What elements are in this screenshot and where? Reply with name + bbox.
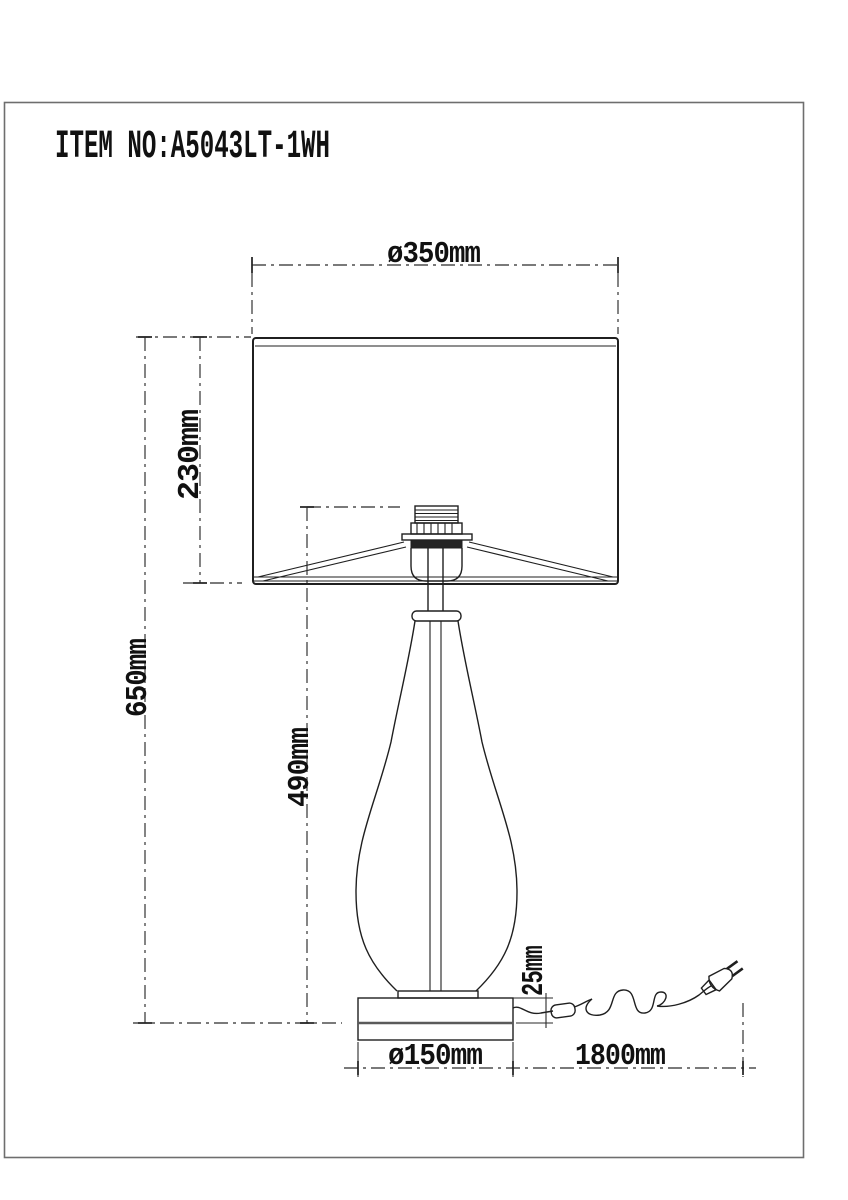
dimension-total-height: 650mm [121,337,342,1023]
total-height-label: 650mm [121,639,156,717]
dimensions: ø350mm 230mm 650mm 490mm [121,237,756,1077]
socket-lower-thread [411,540,462,548]
socket-knurled-ring [411,523,462,534]
item-number-label: ITEM NO:A5043LT-1WH [55,125,330,170]
base-step-label: 25mm [517,946,552,996]
lamp-base [358,998,513,1040]
dimension-base-diameter: ø150mm [344,1039,756,1077]
technical-drawing-page: ITEM NO:A5043LT-1WH [0,0,848,1200]
base-outline [358,998,513,1040]
power-plug [698,958,745,999]
dimension-shade-diameter: ø350mm [252,237,618,334]
base-diameter-label: ø150mm [388,1039,482,1074]
cord-segment-2 [574,999,592,1007]
plug-prong-top [727,961,738,969]
shade-height-label: 230mm [173,410,208,500]
inline-switch [550,1002,576,1018]
cord-length-label: 1800mm [575,1039,665,1074]
cord-coil [586,990,666,1015]
dimension-shade-height: 230mm [136,337,251,583]
lamp-socket [402,506,472,548]
body-outline-right [458,621,517,991]
body-outline-left [356,621,415,991]
body-height-label: 490mm [283,728,318,807]
lamp-drawing [253,338,745,1040]
body-foot-plate [398,991,478,998]
neck-collar [412,611,461,621]
lamp-glass-body [356,621,517,998]
plug-body [706,964,736,993]
socket-bell-cup [411,548,462,581]
cord-segment-1 [513,1007,553,1013]
socket-flange [402,534,472,540]
dimension-base-step: 25mm [513,946,553,1028]
stem-and-rod [412,548,461,991]
plug-prong-bottom [732,968,743,976]
dimension-cord-length: 1800mm [575,1003,743,1077]
shade-diameter-label: ø350mm [387,237,480,272]
